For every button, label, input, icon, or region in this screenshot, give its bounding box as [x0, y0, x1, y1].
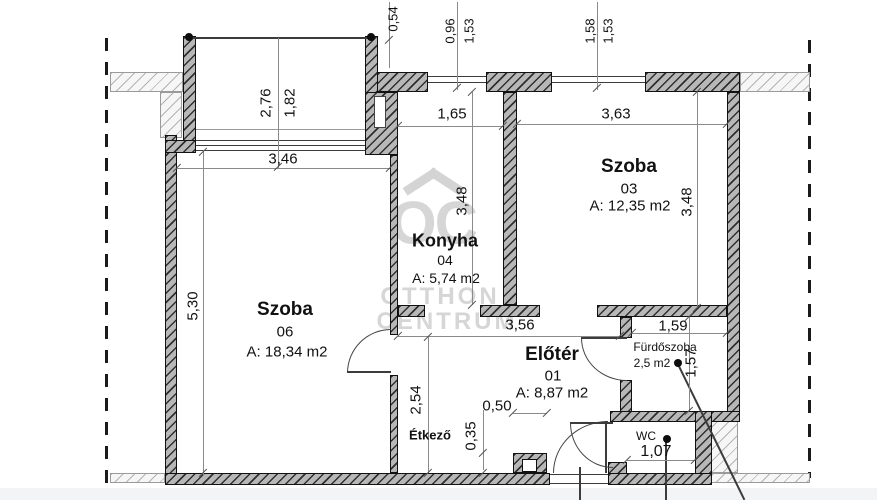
leader-dot-wc: [663, 435, 671, 443]
balcony-window-line2: [196, 145, 365, 146]
balcony-floor-edge: [196, 129, 365, 130]
dim-530: 5,30: [185, 291, 202, 320]
railing-post-left: [185, 33, 193, 41]
dimline-348-szoba03: [697, 92, 698, 308]
dim-348-konyha: 3,48: [454, 186, 471, 215]
neighbour-wall-bottom-right: [700, 473, 810, 483]
door-arc-furdoszoba: [581, 338, 627, 381]
page-bottom-strip: [0, 488, 877, 500]
balcony-window-line1: [196, 140, 365, 141]
dim-182: 1,82: [282, 88, 299, 117]
dimline-254: [428, 337, 429, 473]
wall-divider-szoba06-upper: [390, 155, 398, 335]
neighbour-wall-bottom-left: [110, 473, 165, 483]
area-etkezo-name: Étkező: [409, 428, 451, 443]
leader-line-entry: [579, 467, 581, 500]
dim-276: 2,76: [258, 88, 275, 117]
dim-153b: 1,53: [601, 18, 616, 43]
window2-line2: [552, 82, 645, 83]
dimline-276: [278, 38, 279, 168]
wall-furdo-bottom: [610, 411, 740, 422]
dim-348-szoba03: 3,48: [679, 187, 696, 216]
neighbour-wall-left-vert: [160, 92, 182, 138]
dimline-050: [513, 413, 547, 414]
dimline-096: [457, 2, 458, 90]
wall-bottom-right: [608, 473, 712, 485]
wall-bottom-left: [165, 473, 550, 485]
room-szoba03-number: 03: [621, 181, 638, 198]
dim-165: 1,65: [437, 106, 466, 123]
floor-plan: OC OTTHON CENTRUM: [0, 0, 877, 500]
room-wc-name: WC: [636, 429, 656, 443]
neighbour-wall-right-vert: [710, 415, 738, 473]
wall-band-a: [398, 305, 425, 317]
dimline-165: [398, 126, 503, 127]
leader-dot-furdoszoba: [674, 359, 682, 367]
room-furdoszoba-name: Fürdőszoba: [633, 340, 696, 354]
room-szoba06-number: 06: [277, 324, 294, 341]
railing-post-right: [367, 33, 375, 41]
balcony-railing: [189, 37, 372, 39]
dimline-363: [517, 124, 727, 125]
dimline-158: [597, 2, 598, 90]
wall-right-exterior: [727, 92, 740, 415]
dim-158: 1,58: [583, 18, 598, 43]
dimline-346: [177, 168, 390, 169]
boundary-line-left: [105, 38, 108, 490]
dim-096: 0,96: [443, 18, 458, 43]
dim-050: 0,50: [482, 398, 511, 415]
dimline-356: [398, 336, 620, 337]
room-szoba03-area: A: 12,35 m2: [590, 198, 671, 215]
neighbour-wall-top-left: [110, 72, 183, 92]
wall-furdo-left-bottom: [620, 380, 632, 415]
wall-niche: [374, 96, 386, 128]
dim-054: 0,54: [386, 6, 401, 31]
room-szoba03-name: Szoba: [601, 156, 657, 178]
dim-107: 1,07: [640, 443, 671, 461]
wall-top-a: [377, 72, 428, 92]
door-arc-szoba06: [347, 329, 391, 373]
dim-254: 2,54: [408, 385, 425, 414]
boundary-line-right: [808, 40, 811, 478]
door-leaf-wc: [570, 422, 613, 424]
wall-left-exterior: [165, 135, 177, 485]
dim-159: 1,59: [658, 318, 687, 335]
wall-band-b: [480, 305, 540, 317]
dim-153a: 1,53: [462, 18, 477, 43]
room-szoba06-name: Szoba: [257, 299, 313, 321]
wall-szoba06-top-left: [165, 140, 196, 153]
dimline-035: [483, 410, 484, 470]
neighbour-wall-top-right: [740, 72, 810, 92]
room-eloter-name: Előtér: [525, 344, 579, 366]
room-konyha-area: A: 5,74 m2: [412, 270, 480, 286]
dim-356: 3,56: [505, 317, 534, 334]
room-konyha-number: 04: [437, 252, 453, 268]
wall-band-c: [597, 305, 727, 317]
room-szoba06-area: A: 18,34 m2: [247, 344, 328, 361]
dim-346: 3,46: [268, 151, 297, 168]
room-konyha-name: Konyha: [412, 231, 478, 252]
dim-363: 3,63: [601, 106, 630, 123]
window2-line1: [552, 76, 645, 77]
wall-divider-szoba06-lower: [390, 375, 398, 473]
wall-balcony-left: [183, 36, 196, 142]
wall-top-c: [645, 72, 740, 92]
wall-top-b: [486, 72, 552, 92]
room-eloter-area: A: 8,87 m2: [516, 385, 589, 402]
door-leaf-szoba06: [347, 371, 391, 373]
pillar-shaft: [522, 459, 537, 472]
dim-035: 0,35: [463, 421, 480, 450]
room-eloter-number: 01: [545, 368, 562, 385]
room-furdoszoba-area: 2,5 m2: [634, 356, 671, 370]
door-leaf-furdoszoba: [581, 337, 627, 339]
dimline-530: [203, 150, 204, 475]
